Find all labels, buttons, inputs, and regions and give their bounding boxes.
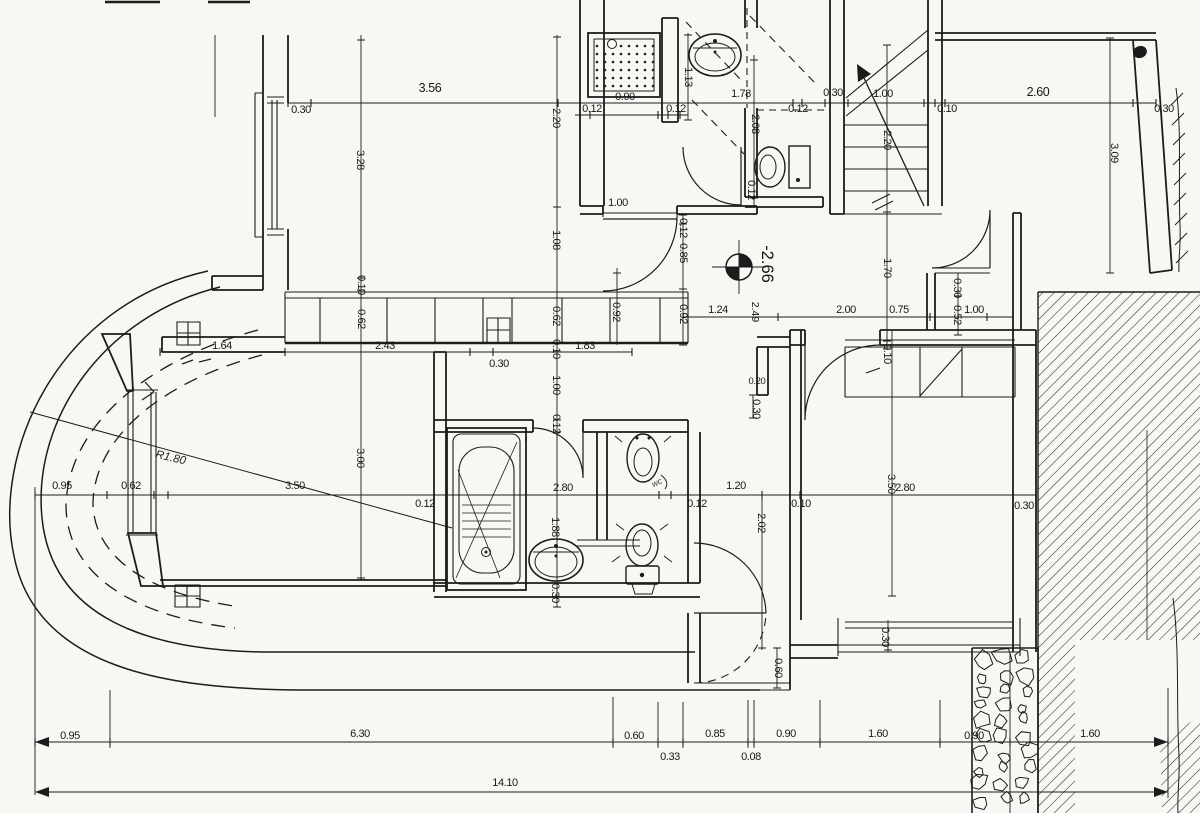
dim-label: 0.12 bbox=[745, 180, 757, 200]
dim-label: 0.30 bbox=[291, 104, 311, 116]
dim-label: 3.50 bbox=[285, 480, 305, 492]
dim-label: 3.28 bbox=[354, 150, 366, 170]
dim-label: 2.80 bbox=[553, 482, 573, 494]
dim-label: 0.90 bbox=[776, 728, 796, 740]
dim-label: 1.78 bbox=[731, 88, 751, 100]
dim-label: 0.62 bbox=[550, 306, 562, 326]
dim-label: 0.30 bbox=[823, 87, 843, 99]
dim-label: 1.83 bbox=[575, 340, 595, 352]
dim-label: 0.10 bbox=[355, 275, 367, 295]
dim-label: 0.52 bbox=[951, 305, 963, 325]
level-label: 2.49 bbox=[749, 302, 761, 323]
floor-plan-page: 3.560.300.120.900.121.780.120.301.000.10… bbox=[0, 0, 1200, 813]
dim-label: 2.08 bbox=[749, 114, 761, 134]
dim-label: 0.08 bbox=[741, 751, 761, 763]
dim-label: 1.60 bbox=[868, 728, 888, 740]
dim-label: 1.00 bbox=[873, 88, 893, 100]
dim-label: 0.12 bbox=[666, 103, 686, 115]
dim-label: 0.10 bbox=[791, 498, 811, 510]
dim-label: 2.20 bbox=[550, 108, 562, 128]
dim-label: 1.00 bbox=[964, 304, 984, 316]
dim-label: 2.20 bbox=[881, 130, 893, 150]
dim-label: 2.60 bbox=[1027, 85, 1050, 99]
dim-label: 0.60 bbox=[624, 730, 644, 742]
dim-label: 0.30 bbox=[489, 358, 509, 370]
dim-label: 0.30 bbox=[549, 583, 561, 603]
paper-background bbox=[0, 0, 1200, 813]
dim-label: 1.70 bbox=[881, 258, 893, 278]
dim-label: 0.20 bbox=[749, 376, 766, 387]
dim-label: 3.09 bbox=[1108, 143, 1120, 163]
dim-label: 3.00 bbox=[354, 448, 366, 468]
dim-label: 0.85 bbox=[705, 728, 725, 740]
dim-label: 0.90 bbox=[615, 91, 635, 103]
dim-label: 2.00 bbox=[836, 304, 856, 316]
dim-label: 0.92 bbox=[610, 302, 622, 322]
dim-label: 6.30 bbox=[350, 728, 370, 740]
dim-label: 0.30 bbox=[1154, 103, 1174, 115]
dim-label: 0.12 bbox=[677, 218, 689, 238]
dim-label: 0.12 bbox=[788, 103, 808, 115]
dim-label: 0.12 bbox=[582, 103, 602, 115]
dim-label: 1.20 bbox=[726, 480, 746, 492]
dim-label: 0.30 bbox=[750, 399, 762, 419]
dim-label: 1.08 bbox=[550, 230, 562, 250]
dim-label: 0.33 bbox=[660, 751, 680, 763]
floor-plan-drawing: 3.560.300.120.900.121.780.120.301.000.10… bbox=[0, 0, 1200, 813]
dim-label: 0.10 bbox=[881, 344, 893, 364]
dim-label: 3.56 bbox=[419, 81, 442, 95]
dim-label: 0.95 bbox=[52, 480, 72, 492]
dim-label: 0.62 bbox=[121, 480, 141, 492]
dim-label: 2.43 bbox=[375, 340, 395, 352]
dim-label: 1.24 bbox=[708, 304, 728, 316]
level-label: -2.66 bbox=[758, 245, 776, 283]
dim-label: 0.90 bbox=[964, 730, 984, 742]
dim-label: 2.80 bbox=[895, 482, 915, 494]
dim-label: 0.62 bbox=[355, 309, 367, 329]
dim-label: 1.60 bbox=[1080, 728, 1100, 740]
dim-label: 0.10 bbox=[937, 103, 957, 115]
dim-label: 0.30 bbox=[951, 278, 963, 298]
dim-label: 0.12 bbox=[687, 498, 707, 510]
dim-label: 0.95 bbox=[60, 730, 80, 742]
dim-label: 1.88 bbox=[549, 517, 561, 537]
dim-label: 14.10 bbox=[492, 777, 518, 789]
dim-label: 3.50 bbox=[885, 474, 897, 494]
dim-label: 2.02 bbox=[755, 513, 767, 533]
dim-label: 1.00 bbox=[608, 197, 628, 209]
dim-label: 0.12 bbox=[550, 414, 562, 434]
dim-label: 0.85 bbox=[677, 243, 689, 263]
dim-label: 1.64 bbox=[212, 340, 232, 352]
dim-label: 0.75 bbox=[889, 304, 909, 316]
dim-label: 0.12 bbox=[415, 498, 435, 510]
dim-label: 0.60 bbox=[772, 658, 784, 678]
dim-label: 1.13 bbox=[682, 67, 694, 87]
dim-label: 0.30 bbox=[879, 627, 891, 647]
dim-label: 0.92 bbox=[677, 304, 689, 324]
dim-label: 0.30 bbox=[1014, 500, 1034, 512]
dim-label: 0.10 bbox=[550, 339, 562, 359]
dim-label: 1.00 bbox=[550, 375, 562, 395]
